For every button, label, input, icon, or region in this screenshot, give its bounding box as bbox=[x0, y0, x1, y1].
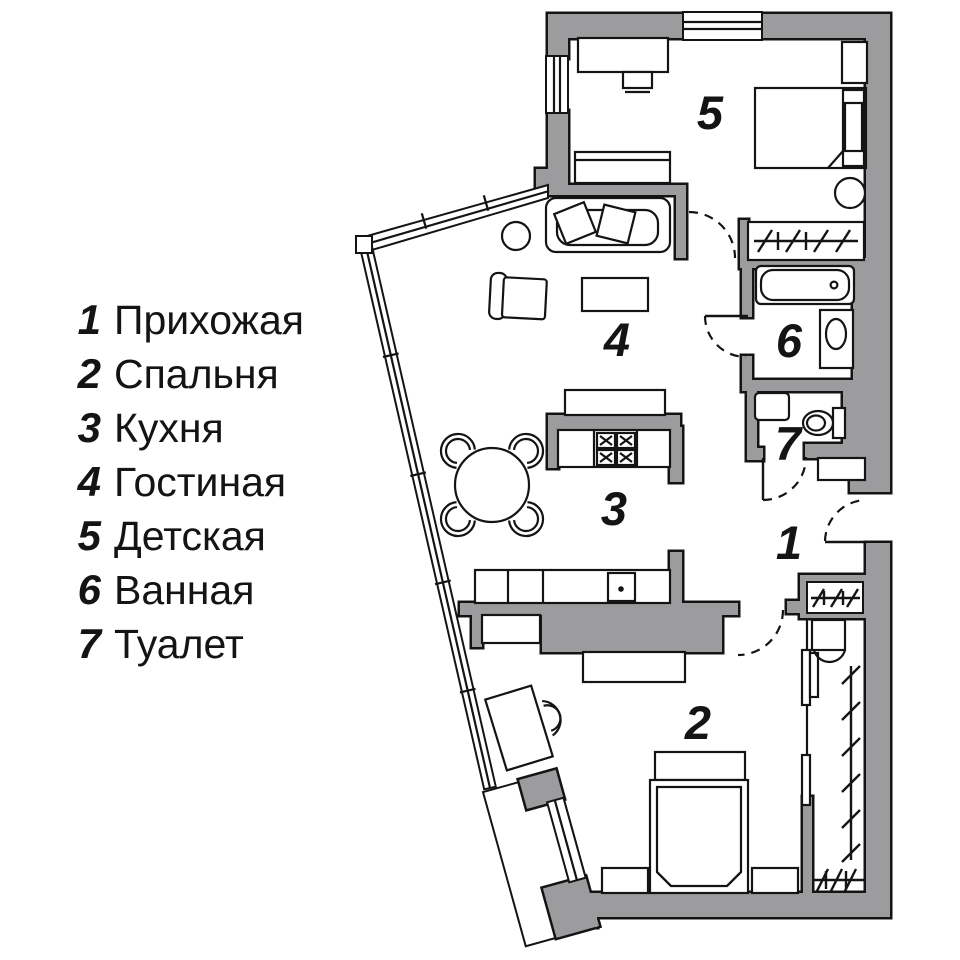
room-label-bedroom: 2 bbox=[684, 696, 711, 749]
entry-door-icon bbox=[825, 500, 867, 542]
desk-icon bbox=[578, 38, 668, 72]
washing-machine-icon bbox=[755, 393, 789, 420]
floor-plan-drawing: 1 2 3 4 5 6 7 bbox=[0, 0, 960, 960]
room-label-wc: 7 bbox=[775, 417, 803, 470]
armchair-icon bbox=[489, 273, 547, 322]
pillow-icon bbox=[597, 205, 636, 244]
door-arc-bathroom-icon bbox=[705, 316, 748, 357]
door-arc-bedroom-icon bbox=[738, 610, 783, 655]
hall-closet-icon bbox=[807, 582, 863, 613]
nightstand-icon bbox=[842, 42, 867, 83]
room-bathroom bbox=[756, 266, 854, 368]
coffee-table-icon bbox=[582, 278, 648, 311]
dressing-table-icon bbox=[485, 680, 571, 770]
couch-icon bbox=[575, 152, 670, 183]
door-arc-children-icon bbox=[689, 212, 735, 258]
dining-table-icon bbox=[455, 448, 529, 522]
shelf-icon bbox=[818, 458, 865, 480]
kitchen-sink-icon bbox=[608, 573, 635, 601]
room-living bbox=[489, 198, 670, 321]
kitchen-counter-bottom-icon bbox=[475, 570, 670, 603]
sofa-icon bbox=[546, 198, 670, 252]
chair-icon bbox=[623, 72, 652, 92]
wardrobe-rail-icon bbox=[748, 222, 864, 260]
double-bed-icon bbox=[650, 752, 748, 893]
room-label-bathroom: 6 bbox=[776, 314, 803, 367]
nightstand-icon bbox=[752, 868, 798, 893]
stove-icon bbox=[597, 433, 635, 465]
dresser-icon bbox=[583, 652, 685, 682]
room-label-living: 4 bbox=[603, 313, 630, 366]
pouf-icon bbox=[835, 178, 865, 208]
room-label-hallway: 1 bbox=[776, 516, 802, 569]
nightstand-icon bbox=[602, 868, 648, 893]
window-children-room-icon bbox=[546, 56, 568, 113]
bathtub-icon bbox=[756, 266, 854, 304]
tv-console-icon bbox=[565, 390, 665, 415]
window-top-icon bbox=[683, 12, 762, 40]
corner-cabinet-icon bbox=[482, 615, 540, 643]
room-label-kitchen: 3 bbox=[601, 482, 627, 535]
side-table-icon bbox=[502, 222, 530, 250]
room-label-children: 5 bbox=[697, 86, 724, 139]
floor-plan-page: 1 Прихожая 2 Спальня 3 Кухня 4 Гостиная … bbox=[0, 0, 960, 960]
walk-in-wardrobe-icon bbox=[812, 620, 866, 891]
toilet-icon bbox=[803, 408, 845, 438]
bed-icon bbox=[755, 88, 866, 168]
sink-icon bbox=[820, 310, 853, 368]
